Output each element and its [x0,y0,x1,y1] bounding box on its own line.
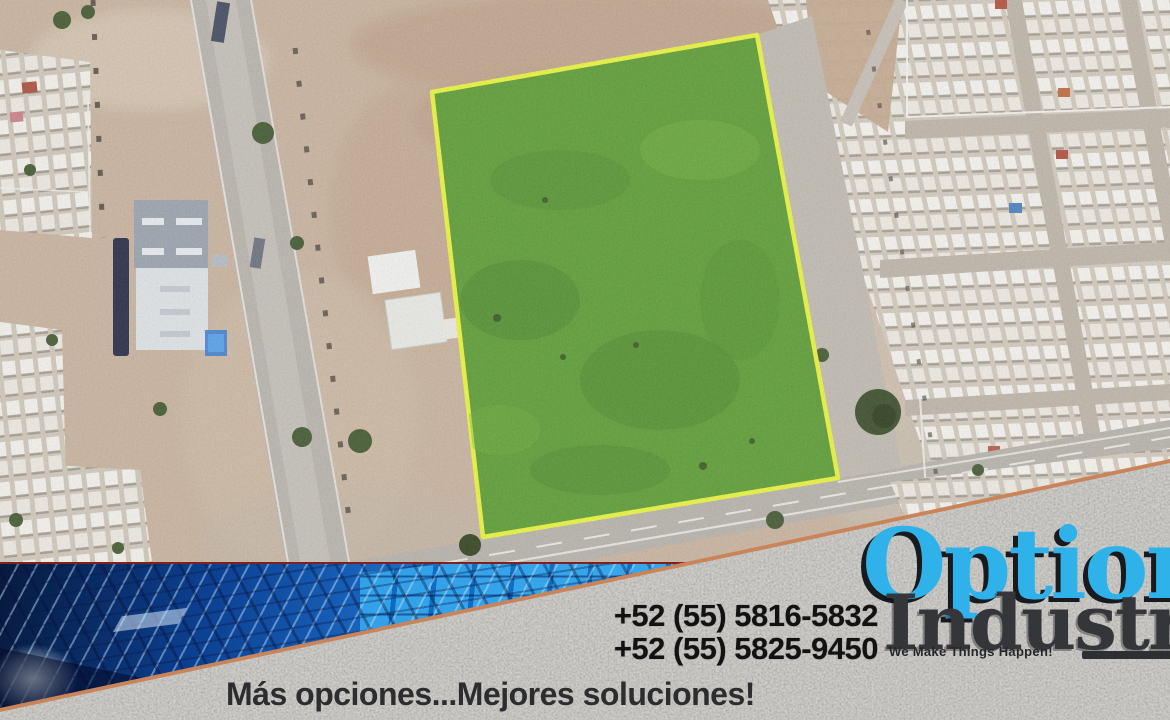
brand-underline-bar [1082,651,1170,659]
brand-tagline: We Make Things Happen! [889,644,1053,659]
phone-number-1: +52 (55) 5816-5832 [614,599,878,632]
phone-number-2: +52 (55) 5825-9450 [614,632,878,665]
slogan-text: Más opciones...Mejores soluciones! [226,676,755,713]
listing-flyer: +52 (55) 5816-5832 +52 (55) 5825-9450 Op… [0,0,1170,720]
phone-block: +52 (55) 5816-5832 +52 (55) 5825-9450 [614,599,878,665]
